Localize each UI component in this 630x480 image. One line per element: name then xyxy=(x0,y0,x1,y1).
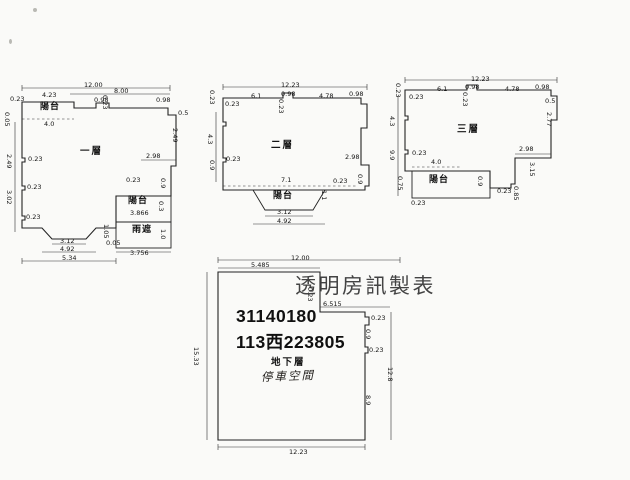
parking-space-label: 停車空間 xyxy=(261,372,315,381)
dimension-label: 0.98 xyxy=(349,91,363,98)
dimension-label: 3.756 xyxy=(130,250,149,257)
dimension-label: 0.9 xyxy=(364,329,371,339)
dimension-label: 4.92 xyxy=(60,246,74,253)
dimension-label: 6.1 xyxy=(437,86,447,93)
dimension-label: 0.23 xyxy=(10,96,24,103)
dimension-label: 12.23 xyxy=(471,76,490,83)
room-label: 陽台 xyxy=(128,198,148,205)
registry-code-line1: 31140180 xyxy=(236,306,317,327)
dimension-label: 8.00 xyxy=(114,88,128,95)
dimension-label: 0.23 xyxy=(371,315,385,322)
dimension-label: 0.23 xyxy=(225,101,239,108)
dimension-label: 0.23 xyxy=(461,92,468,106)
dimension-label: 3.02 xyxy=(5,190,12,204)
room-label: 雨遮 xyxy=(132,227,152,234)
dimension-label: 3.15 xyxy=(528,162,535,176)
dimension-label: 7.1 xyxy=(281,177,291,184)
floor2-plan: 二層 12.230.236.10.980.234.780.980.234.30.… xyxy=(213,82,378,250)
dimension-label: 4.3 xyxy=(206,134,213,144)
dimension-label: 0.5 xyxy=(545,98,555,105)
dimension-label: 12.00 xyxy=(84,82,103,89)
dimension-label: 4.23 xyxy=(42,92,56,99)
dimension-label: 0.23 xyxy=(411,200,425,207)
dimension-label: 0.23 xyxy=(26,214,40,221)
floor1-plan: 一層 12.004.238.000.980.230.980.23陽台0.054.… xyxy=(10,82,205,272)
dimension-label: 0.75 xyxy=(396,176,403,190)
dimension-label: 1.0 xyxy=(159,229,166,239)
dimension-label: 0.05 xyxy=(3,112,10,126)
dimension-label: 5.34 xyxy=(62,255,76,262)
floorplan-document: 一層 12.004.238.000.980.230.980.23陽台0.054.… xyxy=(0,0,630,480)
dimension-label: 15.33 xyxy=(192,347,199,366)
dimension-label: 0.23 xyxy=(394,83,401,97)
dimension-label: 8.9 xyxy=(364,395,371,405)
publisher-watermark: 透明房訊製表 xyxy=(295,270,436,300)
dimension-label: 12.8 xyxy=(386,367,393,381)
dimension-label: 0.9 xyxy=(476,176,483,186)
dimension-label: 9.9 xyxy=(388,150,395,160)
dimension-label: 0.9 xyxy=(159,178,166,188)
registry-code-line2: 113西223805 xyxy=(236,329,345,354)
dimension-label: 1.1 xyxy=(320,190,327,200)
dimension-label: 2.77 xyxy=(545,112,552,126)
dimension-label: 2.98 xyxy=(519,146,533,153)
floor2-title: 二層 xyxy=(271,142,294,149)
dimension-label: 0.3 xyxy=(157,201,164,211)
scan-speck xyxy=(9,39,12,44)
dimension-label: 0.23 xyxy=(226,156,240,163)
dimension-label: 0.85 xyxy=(512,186,519,200)
dimension-label: 4.0 xyxy=(431,159,441,166)
dimension-label: 2.49 xyxy=(5,154,12,168)
dimension-label: 4.3 xyxy=(388,116,395,126)
dimension-label: 0.23 xyxy=(277,99,284,113)
dimension-label: 0.23 xyxy=(333,178,347,185)
dimension-label: 0.98 xyxy=(281,91,295,98)
dimension-label: 0.23 xyxy=(28,156,42,163)
dimension-label: 0.23 xyxy=(497,188,511,195)
dimension-label: 0.98 xyxy=(465,84,479,91)
dimension-label: 12.23 xyxy=(289,449,308,456)
dimension-label: 2.98 xyxy=(146,153,160,160)
dimension-label: 3.12 xyxy=(60,238,74,245)
dimension-label: 0.05 xyxy=(106,240,120,247)
dimension-label: 12.00 xyxy=(291,255,310,262)
dimension-label: 12.23 xyxy=(281,82,300,89)
dimension-label: 4.0 xyxy=(44,121,54,128)
dimension-label: 0.23 xyxy=(126,177,140,184)
dimension-label: 0.9 xyxy=(356,174,363,184)
dimension-label: 2.49 xyxy=(171,128,178,142)
dimension-label: 0.23 xyxy=(101,95,108,109)
scan-speck xyxy=(33,8,37,12)
dimension-label: 0.23 xyxy=(409,94,423,101)
floor1-title: 一層 xyxy=(80,148,103,155)
dimension-label: 4.92 xyxy=(277,218,291,225)
dimension-label: 0.23 xyxy=(369,347,383,354)
dimension-label: 0.5 xyxy=(178,110,188,117)
dimension-label: 0.23 xyxy=(412,150,426,157)
dimension-label: 4.78 xyxy=(505,86,519,93)
dimension-label: 0.9 xyxy=(208,160,215,170)
dimension-label: 0.23 xyxy=(208,90,215,104)
dimension-label: 0.23 xyxy=(27,184,41,191)
room-label: 陽台 xyxy=(40,104,60,111)
dimension-label: 6.1 xyxy=(251,93,261,100)
dimension-label: 1.05 xyxy=(102,224,109,238)
dimension-label: 3.12 xyxy=(277,209,291,216)
dimension-label: 3.866 xyxy=(130,210,149,217)
dimension-label: 0.98 xyxy=(156,97,170,104)
dimension-label: 4.78 xyxy=(319,93,333,100)
dimension-label: 0.98 xyxy=(535,84,549,91)
dimension-label: 2.98 xyxy=(345,154,359,161)
dimension-label: 5.485 xyxy=(251,262,270,269)
room-label: 陽台 xyxy=(429,177,449,184)
floor3-title: 三層 xyxy=(457,126,480,133)
basement-title: 地下層 xyxy=(271,359,306,366)
floor3-plan: 三層 12.230.236.10.980.234.780.980.234.39.… xyxy=(395,76,580,218)
dimension-label: 6.515 xyxy=(323,301,342,308)
room-label: 陽台 xyxy=(273,193,293,200)
